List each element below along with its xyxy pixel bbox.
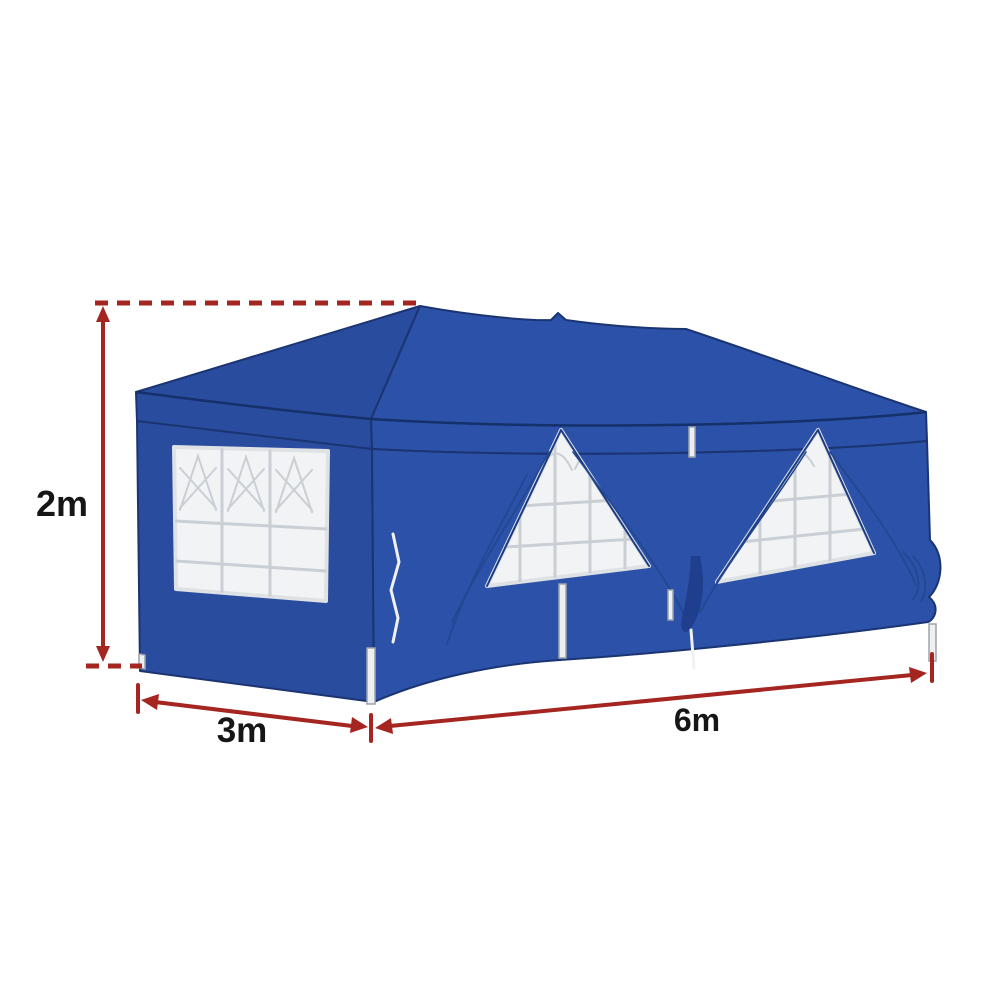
frame-pole-top [689,427,695,457]
leg-bay2 [668,590,673,620]
leg-bay1 [559,584,566,658]
leg-middle-corner [367,648,375,704]
roof-front-face [371,306,926,425]
height-arrowhead-top [96,306,110,322]
width-arrowhead-right [350,717,368,733]
left-window [174,447,328,601]
length-arrowhead-left [375,718,393,734]
wall-front [372,441,940,702]
height-arrowhead-bottom [96,646,110,662]
width-label: 3m [217,711,268,750]
gazebo-diagram-svg: 2m 3m 6m [0,0,1000,1000]
length-label: 6m [674,702,720,738]
length-arrow-line [390,675,912,726]
height-label: 2m [36,483,88,524]
gazebo-front-faces [371,306,940,702]
length-arrowhead-right [909,667,927,683]
product-dimension-image: 2m 3m 6m [0,0,1000,1000]
width-arrowhead-left [141,694,159,710]
gazebo-illustration [136,306,940,704]
